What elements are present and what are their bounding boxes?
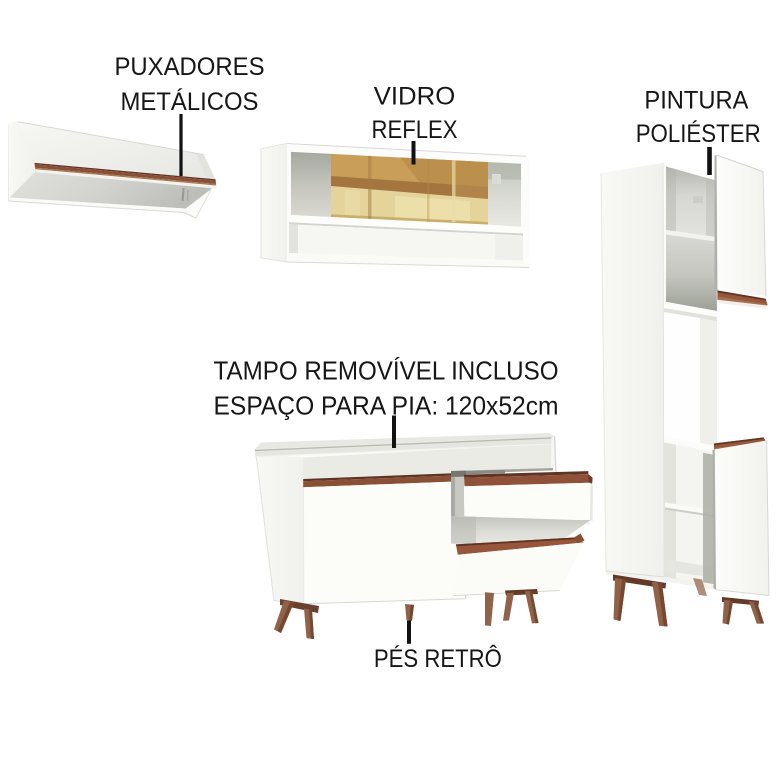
svg-text:PUXADORES: PUXADORES [115, 53, 265, 81]
svg-text:VIDRO: VIDRO [374, 82, 456, 110]
svg-text:POLIÉSTER: POLIÉSTER [636, 119, 761, 148]
svg-text:TAMPO REMOVÍVEL INCLUSO: TAMPO REMOVÍVEL INCLUSO [214, 356, 559, 386]
svg-text:PINTURA: PINTURA [644, 86, 748, 114]
svg-text:ESPAÇO PARA PIA: 120x52cm: ESPAÇO PARA PIA: 120x52cm [214, 391, 559, 421]
svg-text:PÉS RETRÔ: PÉS RETRÔ [374, 644, 502, 673]
svg-text:METÁLICOS: METÁLICOS [121, 87, 259, 116]
svg-text:REFLEX: REFLEX [372, 116, 458, 144]
